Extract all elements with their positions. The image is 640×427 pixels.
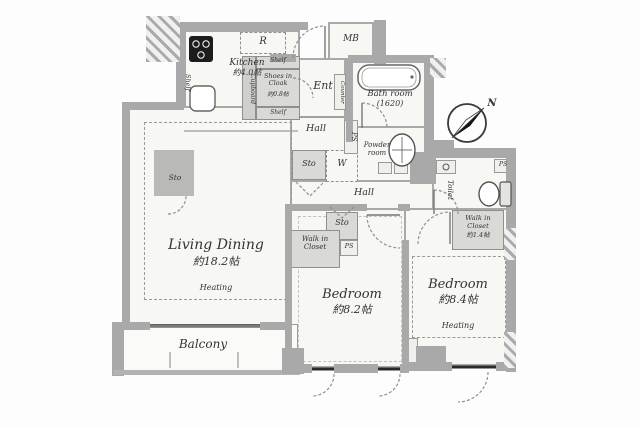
ps-bedroom-label: PS <box>340 243 358 250</box>
wall-bedrooms-divider <box>402 240 409 368</box>
living-size: 約18.2帖 <box>146 256 286 268</box>
wic-right-size: 約1.4帖 <box>454 232 502 239</box>
hatch-right-mid <box>504 228 516 260</box>
wall-living-topleft <box>122 102 184 110</box>
wall-left-outer <box>122 102 130 330</box>
shelf-bottom-label: Shelf <box>256 110 300 117</box>
compass-icon <box>448 104 486 142</box>
hall-upper-label: Hall <box>294 124 338 135</box>
powder-label: Powder room <box>354 142 400 158</box>
wall-bedroom1-left <box>285 204 292 370</box>
bedroom2-label: Bedroom <box>414 278 502 293</box>
powder-cabinet-left <box>378 162 392 174</box>
shelf-kitchen-label: Shelf <box>181 62 191 102</box>
bedroom1-label: Bedroom <box>302 288 402 303</box>
living-heating-label: Heating <box>181 284 251 293</box>
washer-label: W <box>332 159 352 169</box>
sto-bedroom-label: Sto <box>328 219 356 228</box>
bedroom1-size: 約8.2帖 <box>302 304 402 316</box>
refrigerator-label: R <box>250 36 276 47</box>
wall-bedroom1-bottom-a <box>285 364 312 373</box>
wall-balcony-left <box>112 322 124 376</box>
window1-swing-arc <box>312 374 334 396</box>
living-label: Living Dining <box>146 238 286 254</box>
bedroom2-size: 約8.4帖 <box>414 294 502 306</box>
compass-north-label: N <box>484 98 500 109</box>
wall-living-window-right <box>260 322 292 330</box>
floor-plan: Kitchen 約4.0帖 R Shelf Shoes in Cloak 約0.… <box>0 0 640 427</box>
counter-label: Counter <box>335 76 345 108</box>
wall-kitchen-top <box>176 22 308 30</box>
powder-cabinet-right <box>394 162 408 174</box>
wall-bedroom1-bottom-b <box>334 364 378 373</box>
wall-balcony-bottom <box>114 370 300 375</box>
window3-swing-arc <box>458 372 488 402</box>
hatch-topleft <box>146 16 180 62</box>
wall-bedroom1-top-b <box>398 204 410 211</box>
hatch-bath-corner <box>430 58 446 78</box>
wall-bedroom2-bottom-a <box>404 362 452 371</box>
cloak-size: 約0.8帖 <box>257 92 299 99</box>
cloak-label: Shoes in Cloak <box>257 73 299 88</box>
wall-bath-top <box>348 55 432 63</box>
wall-bedroom1-top-a <box>288 204 367 211</box>
wall-toilet-top <box>432 148 516 158</box>
hall-lower-label: Hall <box>342 188 386 199</box>
ps-toilet-label: PS <box>494 162 512 169</box>
bath-size: (1620) <box>362 100 418 109</box>
wic-left-label: Walk in Closet <box>292 236 338 252</box>
wall-powder-right-mass <box>410 152 436 184</box>
shelf-top-label: Shelf <box>256 58 300 65</box>
hatch-right-low <box>504 332 516 368</box>
wall-living-window-left <box>122 322 150 330</box>
heating-area-living <box>144 122 292 300</box>
cupboard-label: Cupboard <box>243 62 255 116</box>
sto-living-label: Sto <box>161 174 189 182</box>
window2-swing-arc <box>378 374 400 396</box>
sto-hall-label: Sto <box>294 160 324 169</box>
mb-label: MB <box>336 34 366 44</box>
bedroom2-heating-label: Heating <box>428 322 488 331</box>
toilet-label: Toilet <box>440 170 453 210</box>
balcony-label: Balcony <box>160 338 246 351</box>
wic-right-label: Walk in Closet <box>454 215 502 230</box>
